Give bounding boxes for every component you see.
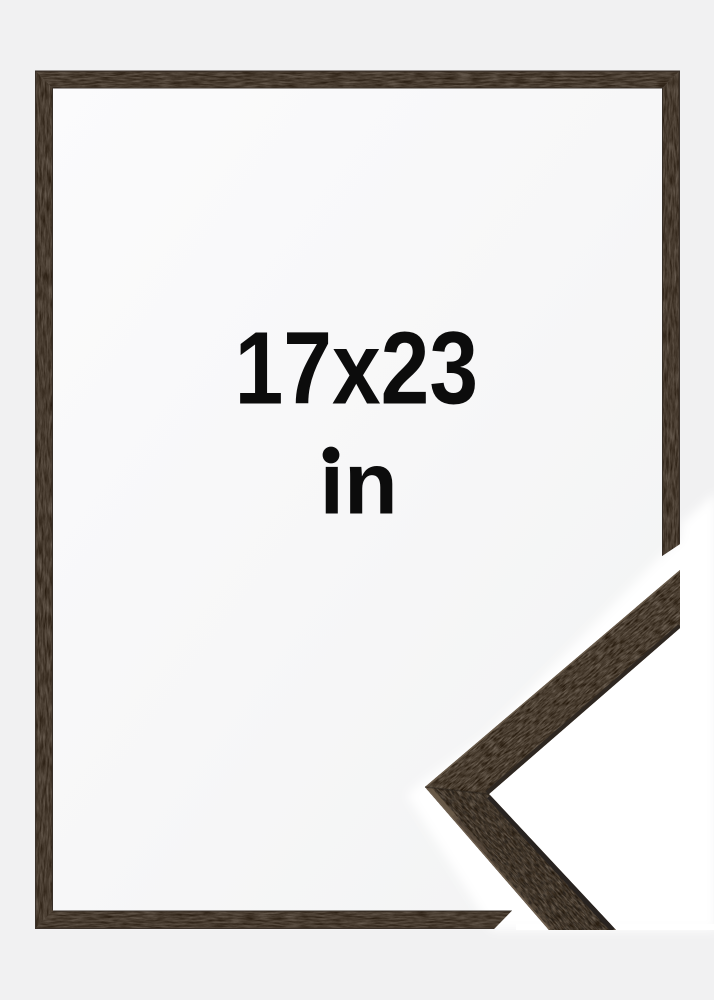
svg-text:17x23: 17x23 — [235, 311, 478, 426]
